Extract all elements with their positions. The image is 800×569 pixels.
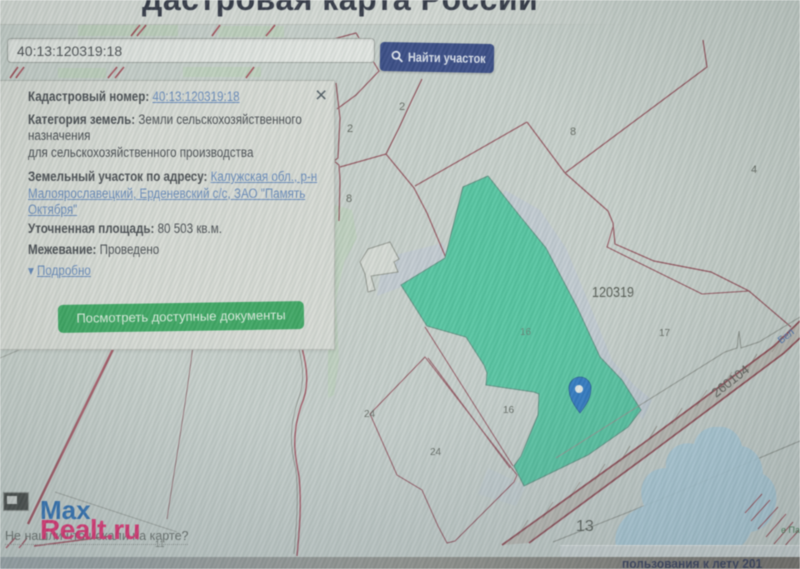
svg-text:24: 24	[364, 409, 376, 420]
svg-text:8: 8	[346, 193, 352, 205]
svg-text:4: 4	[751, 164, 757, 176]
svg-text:24: 24	[430, 447, 442, 458]
svg-text:8: 8	[570, 126, 576, 138]
svg-text:16: 16	[503, 405, 515, 416]
svg-text:120319: 120319	[592, 284, 634, 301]
svg-text:16: 16	[520, 327, 532, 338]
svg-text:е Па: е Па	[781, 525, 800, 535]
svg-text:2: 2	[399, 101, 405, 113]
svg-text:13: 13	[576, 518, 594, 535]
svg-text:17: 17	[659, 328, 671, 339]
svg-text:2: 2	[347, 123, 353, 135]
